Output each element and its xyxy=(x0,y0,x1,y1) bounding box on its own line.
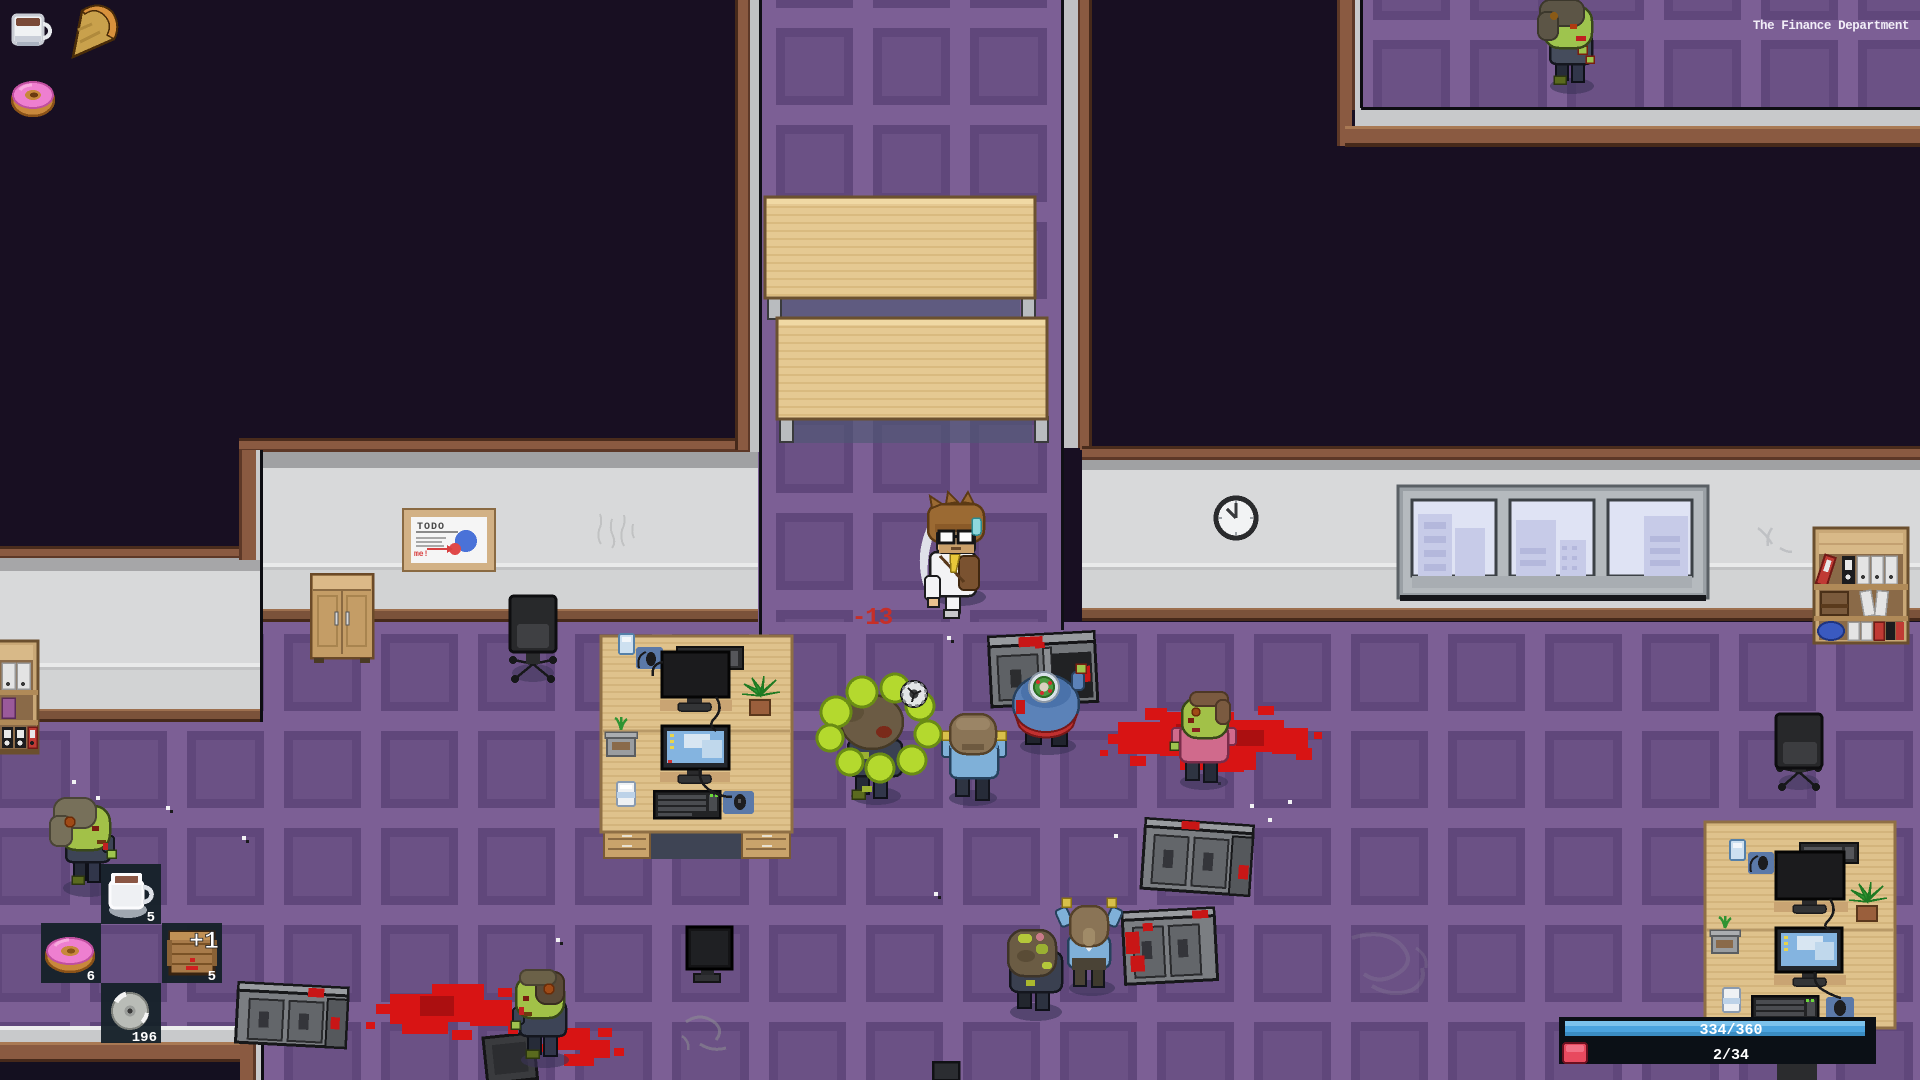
svg-text:5: 5 xyxy=(208,969,216,985)
svg-text:196: 196 xyxy=(132,1030,157,1046)
svg-text:me!: me! xyxy=(414,550,428,559)
svg-text:6: 6 xyxy=(87,969,95,985)
svg-text:334/360: 334/360 xyxy=(1699,1022,1762,1039)
svg-text:+1: +1 xyxy=(189,927,219,956)
svg-text:5: 5 xyxy=(147,910,155,926)
svg-text:-13: -13 xyxy=(852,605,893,632)
svg-text:2/34: 2/34 xyxy=(1713,1047,1749,1064)
svg-text:The Finance Department: The Finance Department xyxy=(1753,19,1909,33)
